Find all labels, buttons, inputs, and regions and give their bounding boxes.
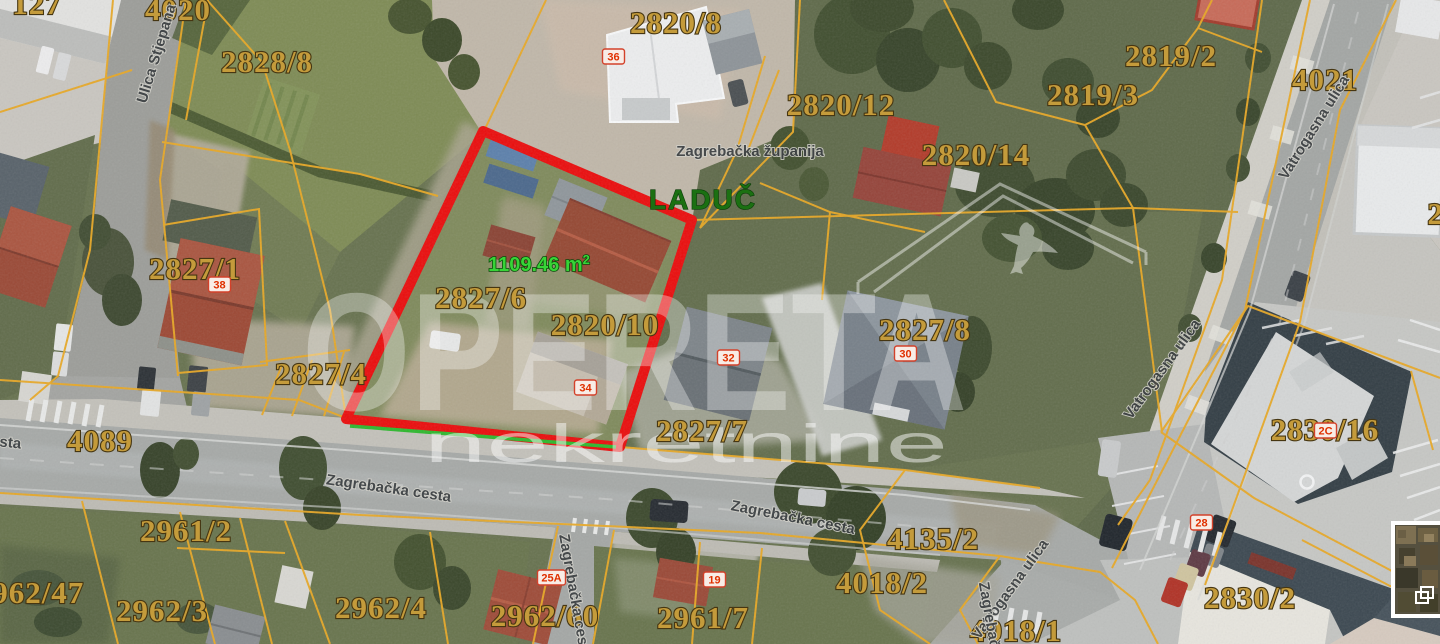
svg-text:4135/2: 4135/2 — [887, 521, 979, 556]
svg-text:2C: 2C — [1318, 426, 1332, 438]
svg-text:2819/2: 2819/2 — [1125, 38, 1217, 73]
svg-text:34: 34 — [579, 383, 592, 395]
svg-text:38: 38 — [213, 280, 225, 292]
svg-text:2830/2: 2830/2 — [1204, 580, 1296, 615]
svg-text:28: 28 — [1195, 518, 1207, 530]
svg-text:19: 19 — [708, 575, 720, 587]
svg-text:LADUČ: LADUČ — [649, 183, 757, 215]
svg-text:Zagrebačka županija: Zagrebačka županija — [676, 143, 824, 160]
svg-text:1109.46 m2: 1109.46 m2 — [488, 252, 590, 276]
svg-text:2827/8: 2827/8 — [879, 312, 971, 347]
svg-text:2820/14: 2820/14 — [922, 137, 1031, 172]
svg-text:2961/2: 2961/2 — [140, 513, 232, 548]
svg-text:2819/3: 2819/3 — [1047, 77, 1139, 112]
svg-text:28: 28 — [1428, 196, 1440, 231]
svg-text:4020: 4020 — [145, 0, 211, 27]
svg-text:2962/4: 2962/4 — [335, 590, 427, 625]
svg-text:2827/6: 2827/6 — [435, 280, 527, 315]
svg-text:2820/12: 2820/12 — [787, 87, 896, 122]
svg-text:4089: 4089 — [67, 423, 133, 458]
svg-text:2962/47: 2962/47 — [0, 575, 84, 610]
svg-text:127: 127 — [12, 0, 62, 21]
svg-text:2962/3: 2962/3 — [116, 593, 208, 628]
svg-text:2827/7: 2827/7 — [656, 413, 748, 448]
svg-text:32: 32 — [722, 353, 734, 365]
svg-text:2827/4: 2827/4 — [275, 356, 367, 391]
svg-text:4018/2: 4018/2 — [836, 565, 928, 600]
svg-text:2820/8: 2820/8 — [630, 5, 722, 40]
svg-text:2820/10: 2820/10 — [551, 307, 660, 342]
svg-text:36: 36 — [607, 52, 619, 64]
svg-text:30: 30 — [899, 349, 911, 361]
svg-text:2961/7: 2961/7 — [657, 600, 749, 635]
svg-text:2828/8: 2828/8 — [221, 44, 313, 79]
svg-text:25A: 25A — [541, 573, 561, 585]
